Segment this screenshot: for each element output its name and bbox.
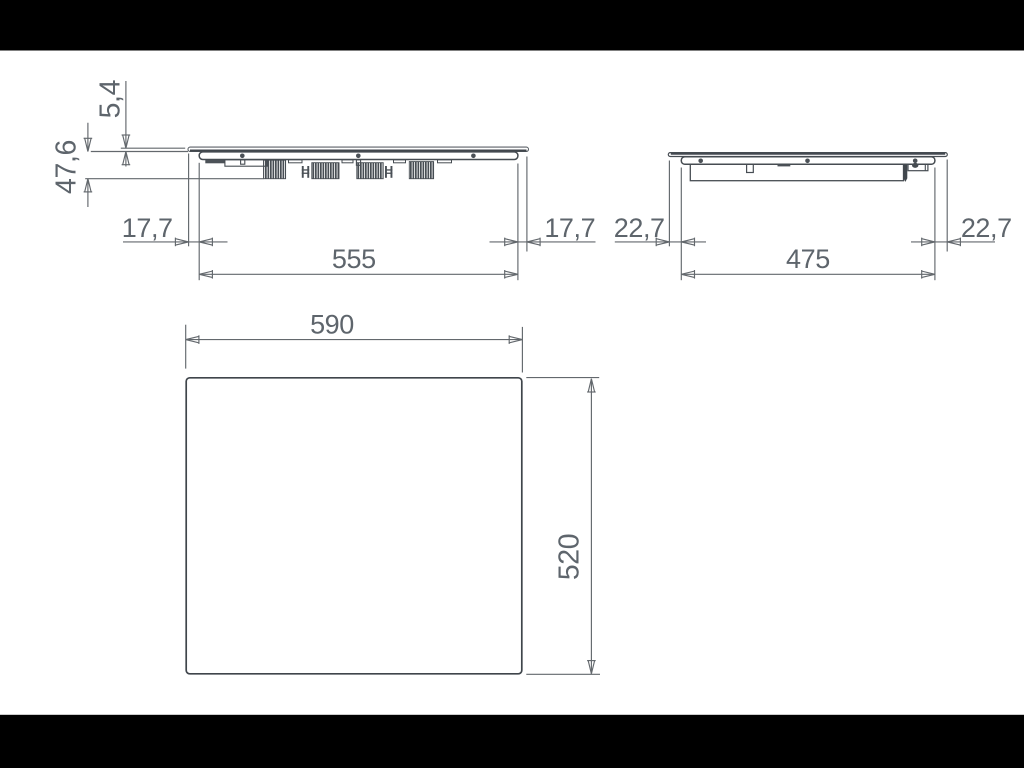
svg-text:590: 590 [310, 309, 354, 339]
svg-text:22,7: 22,7 [961, 213, 1012, 243]
svg-text:47,6: 47,6 [51, 140, 83, 194]
svg-text:5,4: 5,4 [95, 79, 127, 118]
svg-text:555: 555 [332, 244, 376, 274]
svg-text:17,7: 17,7 [544, 213, 595, 243]
svg-text:17,7: 17,7 [122, 213, 173, 243]
svg-text:475: 475 [786, 244, 830, 274]
svg-text:22,7: 22,7 [614, 213, 665, 243]
svg-text:520: 520 [553, 534, 585, 580]
